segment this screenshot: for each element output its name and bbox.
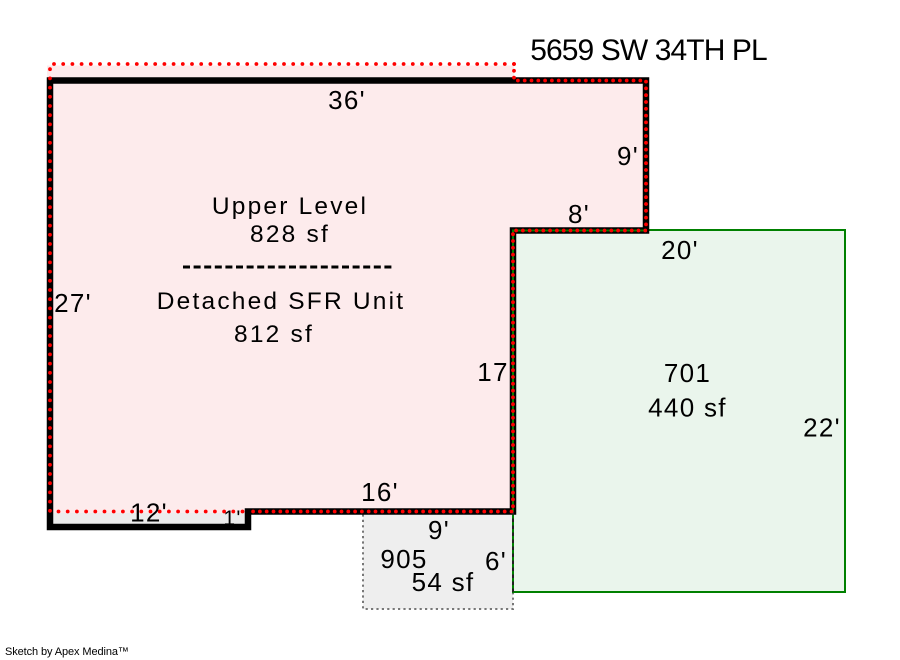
- svg-text:54 sf: 54 sf: [412, 567, 475, 597]
- svg-text:5659 SW 34TH PL: 5659 SW 34TH PL: [530, 34, 767, 67]
- svg-text:9': 9': [617, 141, 639, 171]
- svg-text:440 sf: 440 sf: [648, 393, 727, 423]
- svg-text:16': 16': [361, 477, 399, 507]
- svg-text:1': 1': [223, 507, 241, 530]
- svg-text:27': 27': [54, 288, 92, 318]
- svg-text:Detached SFR Unit: Detached SFR Unit: [157, 288, 405, 315]
- svg-text:701: 701: [664, 358, 711, 388]
- svg-text:6': 6': [485, 546, 507, 576]
- svg-text:812 sf: 812 sf: [234, 321, 314, 348]
- svg-text:Sketch by Apex Medina™: Sketch by Apex Medina™: [5, 646, 129, 658]
- svg-text:17: 17: [477, 357, 509, 387]
- svg-text:12': 12': [130, 498, 168, 528]
- svg-text:828 sf: 828 sf: [250, 221, 330, 248]
- svg-text:36': 36': [328, 85, 366, 115]
- svg-text:Upper Level: Upper Level: [212, 193, 368, 220]
- svg-text:22': 22': [803, 413, 841, 443]
- svg-text:9': 9': [428, 515, 450, 545]
- svg-text:8': 8': [568, 199, 590, 229]
- svg-text:20': 20': [661, 235, 699, 265]
